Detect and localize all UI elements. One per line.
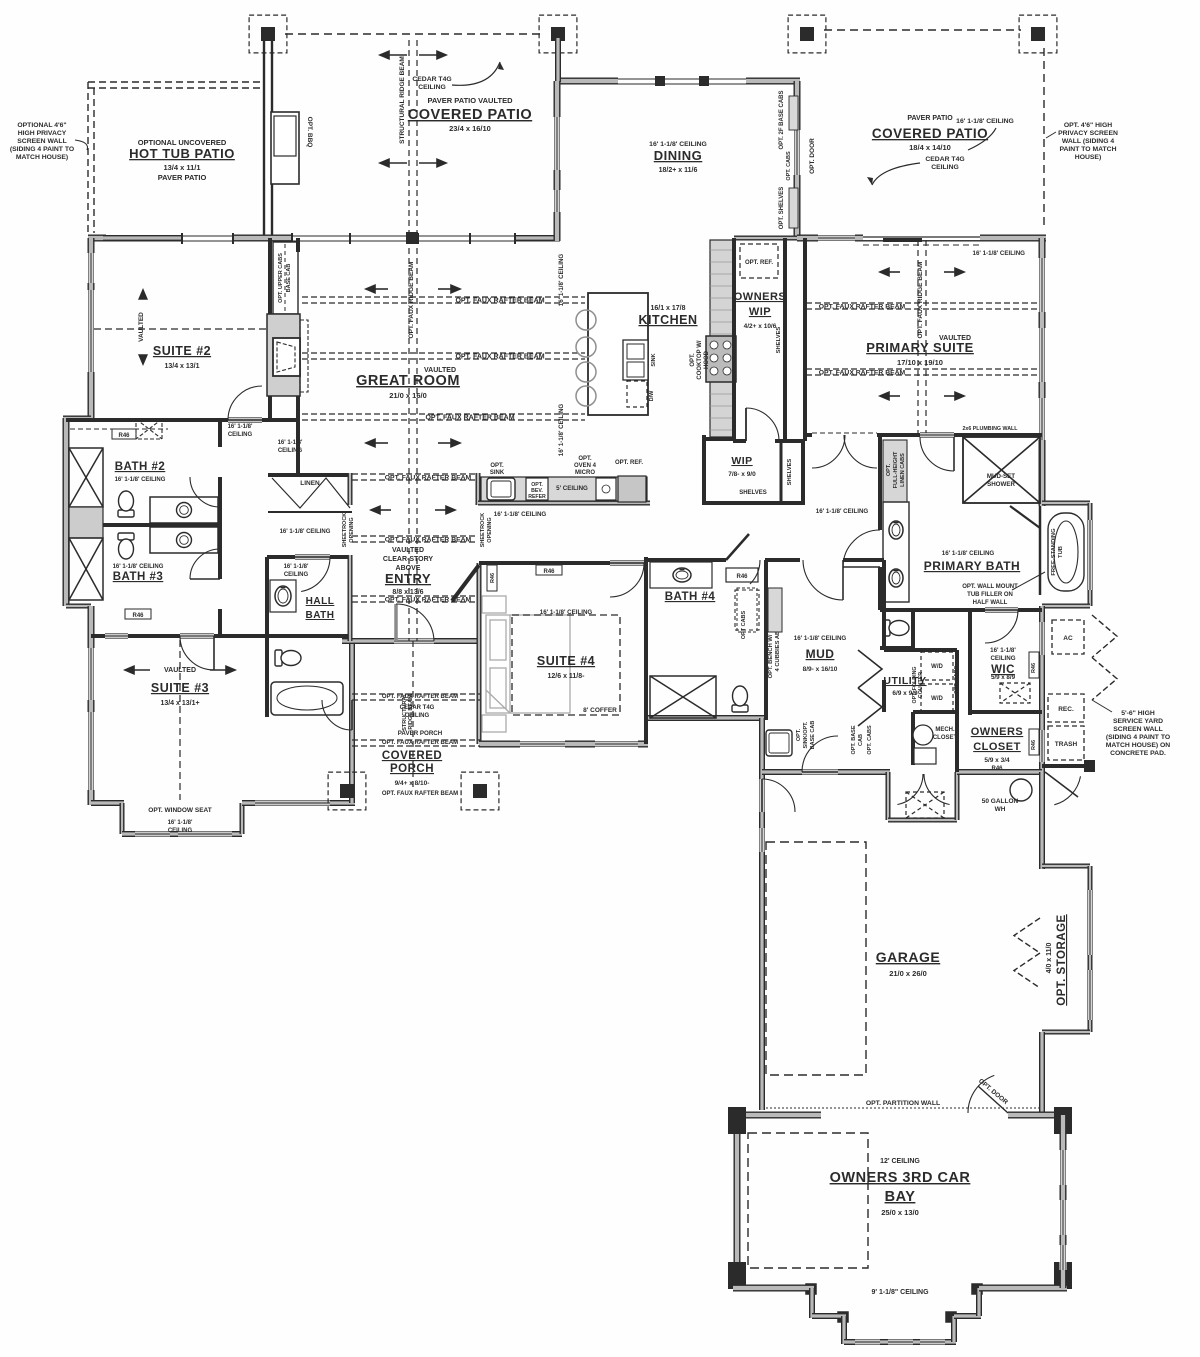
svg-text:SHELVES: SHELVES	[739, 490, 767, 496]
svg-text:R46: R46	[1031, 663, 1037, 673]
svg-text:OVEN 4: OVEN 4	[574, 463, 597, 469]
svg-text:BAY: BAY	[885, 1189, 916, 1205]
svg-text:8/8 x 13/6: 8/8 x 13/6	[392, 589, 423, 596]
svg-text:WIP: WIP	[749, 306, 771, 318]
svg-text:OPT. FAUX RAFTER BEAM: OPT. FAUX RAFTER BEAM	[425, 415, 514, 422]
svg-text:OPT. PARTITION WALL: OPT. PARTITION WALL	[866, 1100, 940, 1107]
svg-text:PAVER PATIO VAULTED: PAVER PATIO VAULTED	[427, 96, 513, 105]
svg-text:16' 1-1/8': 16' 1-1/8'	[284, 564, 309, 570]
svg-text:OPT.: OPT.	[690, 353, 696, 367]
svg-text:16' 1-1/8' CEILING: 16' 1-1/8' CEILING	[973, 250, 1026, 257]
svg-text:5' CEILING: 5' CEILING	[556, 485, 588, 492]
svg-text:BATH #2: BATH #2	[115, 461, 166, 473]
svg-text:BATH #3: BATH #3	[113, 571, 164, 583]
svg-text:16' 1-1/8' CEILING: 16' 1-1/8' CEILING	[956, 118, 1014, 125]
svg-text:PAVER PATIO: PAVER PATIO	[158, 173, 207, 182]
svg-text:16' 1-1/8' CEILING: 16' 1-1/8' CEILING	[942, 550, 995, 557]
svg-text:BASE CAB: BASE CAB	[286, 264, 292, 293]
svg-text:OPT.: OPT.	[578, 456, 592, 462]
svg-text:PAVER PORCH: PAVER PORCH	[398, 730, 443, 737]
svg-text:DINING: DINING	[654, 148, 703, 163]
svg-text:COVERED PATIO: COVERED PATIO	[408, 107, 532, 123]
svg-text:REFER: REFER	[528, 494, 546, 500]
svg-text:R46: R46	[736, 574, 748, 580]
svg-text:TUB: TUB	[1058, 546, 1064, 558]
svg-text:CEILING: CEILING	[405, 713, 430, 719]
svg-text:4/0 x 11/0: 4/0 x 11/0	[1046, 943, 1053, 974]
svg-text:HOOD: HOOD	[704, 350, 710, 369]
svg-text:CLOSET: CLOSET	[933, 735, 958, 741]
svg-text:OPT. WINDOW SEAT: OPT. WINDOW SEAT	[148, 807, 211, 814]
svg-text:OPENING: OPENING	[487, 517, 493, 542]
svg-text:REC.: REC.	[1058, 706, 1074, 713]
svg-text:SHELVES: SHELVES	[776, 327, 782, 354]
svg-text:OPT. 2F BASE CABS: OPT. 2F BASE CABS	[779, 90, 785, 149]
svg-text:16' 1-1/8' CEILING: 16' 1-1/8' CEILING	[794, 635, 847, 642]
svg-text:OPT. FAUX RAFTER BEAM: OPT. FAUX RAFTER BEAM	[455, 298, 544, 305]
svg-text:MECH.: MECH.	[935, 727, 955, 733]
svg-text:R46: R46	[1031, 740, 1037, 750]
svg-text:SCREEN WALL: SCREEN WALL	[1113, 726, 1162, 733]
svg-text:COVERED: COVERED	[382, 750, 442, 762]
svg-text:OPT. FAUX RIDGE BEAM: OPT. FAUX RIDGE BEAM	[408, 262, 415, 339]
svg-text:CEDAR T4G: CEDAR T4G	[412, 76, 451, 83]
svg-text:50 GALLON: 50 GALLON	[982, 798, 1019, 805]
svg-text:MUD: MUD	[806, 647, 835, 661]
svg-text:21/0 x 26/0: 21/0 x 26/0	[889, 969, 927, 978]
svg-text:HIGH PRIVACY: HIGH PRIVACY	[18, 130, 67, 137]
svg-text:OPT. FAUX RAFTER BEAM: OPT. FAUX RAFTER BEAM	[385, 475, 472, 482]
svg-text:16' 1-1/8' CEILING: 16' 1-1/8' CEILING	[558, 404, 565, 457]
svg-text:OPT. FAUX RAFTER BEAM: OPT. FAUX RAFTER BEAM	[455, 354, 544, 361]
svg-text:CLOSET: CLOSET	[973, 741, 1021, 753]
svg-text:OPT. FAUX RAFTER BEAM: OPT. FAUX RAFTER BEAM	[385, 537, 472, 544]
svg-text:CEILING: CEILING	[418, 84, 446, 91]
svg-text:STRUCTURAL RIDGE BEAM: STRUCTURAL RIDGE BEAM	[399, 56, 406, 144]
svg-text:25/0 x 13/0: 25/0 x 13/0	[881, 1208, 919, 1217]
svg-text:W/D: W/D	[931, 664, 943, 670]
svg-text:R46: R46	[543, 569, 555, 575]
svg-text:CEILING: CEILING	[990, 655, 1015, 662]
svg-text:5/9 x 3/4: 5/9 x 3/4	[984, 757, 1010, 764]
svg-text:CLEAR-STORY: CLEAR-STORY	[383, 556, 434, 563]
svg-text:BASE CAB: BASE CAB	[810, 721, 816, 750]
svg-text:FREE-STANDING: FREE-STANDING	[1051, 528, 1057, 576]
svg-text:R46: R46	[118, 433, 130, 439]
svg-text:8' COFFER: 8' COFFER	[583, 707, 617, 714]
svg-text:18/2+ x 11/6: 18/2+ x 11/6	[659, 167, 698, 174]
svg-text:HALL: HALL	[306, 596, 335, 607]
svg-text:OWNERS: OWNERS	[971, 726, 1024, 738]
svg-text:OWNERS: OWNERS	[734, 291, 787, 303]
svg-text:CEILING: CEILING	[931, 164, 959, 171]
svg-text:SUITE #4: SUITE #4	[537, 654, 595, 668]
svg-text:SHOWER: SHOWER	[987, 481, 1015, 488]
svg-text:SHEETROCK: SHEETROCK	[480, 513, 486, 548]
svg-text:PRIMARY SUITE: PRIMARY SUITE	[866, 340, 974, 355]
svg-text:MATCH HOUSE) ON: MATCH HOUSE) ON	[1106, 742, 1171, 749]
svg-text:23/4 x 16/10: 23/4 x 16/10	[449, 124, 491, 133]
svg-text:MICRO: MICRO	[575, 470, 595, 476]
svg-text:CAB: CAB	[858, 734, 864, 746]
svg-text:(SIDING 4 PAINT TO: (SIDING 4 PAINT TO	[1106, 734, 1170, 741]
svg-text:SHEETROCK: SHEETROCK	[342, 513, 348, 548]
svg-text:OPT. UPPER CABS: OPT. UPPER CABS	[278, 253, 284, 303]
svg-text:OPT.: OPT.	[886, 463, 892, 476]
svg-text:12' CEILING: 12' CEILING	[880, 1158, 920, 1165]
svg-text:SINK: SINK	[651, 353, 657, 366]
svg-text:OPTIONAL 4'6": OPTIONAL 4'6"	[17, 122, 66, 129]
svg-text:16' 1-1/8': 16' 1-1/8'	[228, 424, 253, 430]
svg-text:LINEN CABS: LINEN CABS	[900, 453, 906, 487]
svg-text:CEDAR T4G: CEDAR T4G	[925, 156, 964, 163]
svg-text:16' 1-1/8' CEILING: 16' 1-1/8' CEILING	[558, 254, 565, 307]
svg-text:CEILING: CEILING	[168, 828, 193, 834]
svg-text:CONCRETE PAD.: CONCRETE PAD.	[1110, 750, 1166, 757]
svg-text:RIDGE BEAM: RIDGE BEAM	[408, 694, 414, 730]
svg-text:WIP: WIP	[731, 455, 752, 467]
svg-text:CEILING: CEILING	[278, 448, 303, 454]
svg-text:PORCH: PORCH	[390, 763, 434, 775]
svg-text:OPT. WALL MOUNT: OPT. WALL MOUNT	[962, 584, 1018, 590]
svg-text:TRASH: TRASH	[1055, 741, 1078, 748]
svg-text:LINEN: LINEN	[300, 480, 320, 487]
svg-text:OWNERS 3RD CAR: OWNERS 3RD CAR	[830, 1170, 971, 1186]
svg-text:CEDAR T4G: CEDAR T4G	[400, 705, 435, 711]
svg-text:MUD-SET: MUD-SET	[987, 473, 1015, 480]
svg-text:PAVER PATIO: PAVER PATIO	[907, 115, 953, 122]
svg-text:OPT.: OPT.	[796, 728, 802, 741]
svg-text:OPT. 4'6" HIGH: OPT. 4'6" HIGH	[1064, 122, 1112, 129]
svg-text:5'-6" HIGH: 5'-6" HIGH	[1121, 710, 1155, 717]
svg-text:BATH #4: BATH #4	[665, 591, 716, 603]
svg-text:TUB FILLER ON: TUB FILLER ON	[967, 592, 1013, 598]
svg-text:AC: AC	[1063, 635, 1073, 642]
svg-text:(SIDING 4 PAINT TO: (SIDING 4 PAINT TO	[10, 146, 74, 153]
svg-text:SINK/OPT.: SINK/OPT.	[803, 721, 809, 748]
svg-text:16' 1-1/8': 16' 1-1/8'	[990, 647, 1016, 654]
svg-text:SUITE #2: SUITE #2	[153, 344, 211, 358]
svg-text:17/10 x 19/10: 17/10 x 19/10	[897, 358, 943, 367]
svg-text:OPT. CABS: OPT. CABS	[867, 725, 873, 755]
svg-text:HOUSE): HOUSE)	[1075, 154, 1101, 161]
svg-text:16' 1-1/8': 16' 1-1/8'	[278, 440, 303, 446]
svg-text:CEILING: CEILING	[284, 572, 309, 578]
svg-text:16' 1-1/8': 16' 1-1/8'	[168, 820, 193, 826]
svg-text:18/4 x 14/10: 18/4 x 14/10	[909, 143, 951, 152]
svg-text:4/2+ x 10/6: 4/2+ x 10/6	[744, 323, 777, 330]
svg-text:COOKTOP W/: COOKTOP W/	[697, 340, 703, 379]
svg-text:OPT. FAUX RAFTER BEAM: OPT. FAUX RAFTER BEAM	[819, 304, 906, 311]
svg-text:PAINT TO MATCH: PAINT TO MATCH	[1059, 146, 1116, 153]
svg-text:16' 1-1/8' CEILING: 16' 1-1/8' CEILING	[816, 508, 869, 515]
svg-text:VAULTED: VAULTED	[392, 547, 424, 554]
svg-text:OPT. BASE: OPT. BASE	[851, 725, 857, 754]
svg-text:CEILING: CEILING	[228, 432, 253, 438]
svg-text:R46: R46	[132, 613, 144, 619]
svg-text:HALF WALL: HALF WALL	[973, 600, 1008, 606]
svg-text:9' 1-1/8" CEILING: 9' 1-1/8" CEILING	[871, 1289, 929, 1296]
svg-text:13/4 x 13/1: 13/4 x 13/1	[164, 363, 199, 370]
svg-text:21/0 x 16/0: 21/0 x 16/0	[389, 391, 427, 400]
svg-text:16' 1-1/8' CEILING: 16' 1-1/8' CEILING	[115, 477, 166, 483]
svg-text:OPT. FAUX RAFTER BEAM: OPT. FAUX RAFTER BEAM	[382, 791, 458, 797]
svg-text:WH: WH	[995, 806, 1006, 813]
svg-text:OPT.: OPT.	[490, 463, 504, 469]
svg-text:7/8- x 9/0: 7/8- x 9/0	[728, 471, 756, 478]
svg-text:OPT CABS: OPT CABS	[741, 610, 747, 639]
svg-text:GARAGE: GARAGE	[876, 949, 940, 965]
svg-text:COVERED PATIO: COVERED PATIO	[872, 126, 988, 141]
svg-text:VAULTED: VAULTED	[138, 312, 145, 342]
svg-text:OPT. REF.: OPT. REF.	[615, 460, 643, 466]
svg-text:OPT. FAUX RAFTER BEAM: OPT. FAUX RAFTER BEAM	[385, 597, 472, 604]
svg-text:SERVICE YARD: SERVICE YARD	[1113, 718, 1163, 725]
svg-text:16' 1-1/8' CEILING: 16' 1-1/8' CEILING	[540, 609, 593, 616]
svg-text:ENTRY: ENTRY	[385, 571, 431, 586]
svg-text:SCREEN WALL: SCREEN WALL	[17, 138, 66, 145]
svg-text:12/6 x 11/8-: 12/6 x 11/8-	[548, 673, 586, 680]
svg-text:OPT. SHELVES: OPT. SHELVES	[779, 187, 785, 230]
svg-text:HOT TUB PATIO: HOT TUB PATIO	[129, 146, 235, 161]
svg-text:SINK: SINK	[490, 470, 505, 476]
svg-text:OPT. BBQ: OPT. BBQ	[306, 117, 313, 148]
svg-text:R46: R46	[991, 766, 1003, 772]
svg-text:FULL-HEIGHT: FULL-HEIGHT	[893, 451, 899, 488]
svg-text:OPENING: OPENING	[349, 517, 355, 542]
svg-text:MATCH HOUSE): MATCH HOUSE)	[16, 154, 68, 161]
svg-text:KITCHEN: KITCHEN	[638, 313, 697, 327]
svg-text:16' 1-1/8' CEILING: 16' 1-1/8' CEILING	[494, 511, 547, 518]
svg-text:PRIMARY BATH: PRIMARY BATH	[924, 559, 1020, 573]
svg-text:OPT. FAUX RAFTER BEAM: OPT. FAUX RAFTER BEAM	[382, 740, 458, 746]
svg-text:OPT. REF.: OPT. REF.	[745, 260, 773, 266]
svg-text:8/9- x 16/10: 8/9- x 16/10	[803, 666, 838, 673]
svg-text:16/1 x 17/8: 16/1 x 17/8	[650, 305, 685, 312]
svg-text:SHELVES: SHELVES	[787, 459, 793, 486]
svg-text:13/4 x 11/1: 13/4 x 11/1	[163, 163, 200, 172]
svg-text:BATH: BATH	[305, 610, 334, 621]
svg-text:2x6 PLUMBING WALL: 2x6 PLUMBING WALL	[962, 426, 1018, 432]
svg-text:OPT. FAUX RAFTER BEAM: OPT. FAUX RAFTER BEAM	[819, 370, 906, 377]
svg-text:OPT. CABS: OPT. CABS	[954, 665, 960, 694]
svg-text:16' 1-1/8' CEILING: 16' 1-1/8' CEILING	[649, 141, 707, 148]
svg-text:9/4+ x 8/10-: 9/4+ x 8/10-	[395, 780, 430, 787]
svg-text:OPT. FAUX RAFTER BEAM: OPT. FAUX RAFTER BEAM	[382, 694, 458, 700]
svg-text:WALL (SIDING 4: WALL (SIDING 4	[1062, 138, 1115, 145]
svg-text:COUNTER: COUNTER	[918, 672, 924, 698]
svg-text:16' 1-1/8' CEILING: 16' 1-1/8' CEILING	[280, 529, 331, 535]
svg-text:5/9 x 8/9: 5/9 x 8/9	[991, 674, 1016, 681]
svg-text:OPT. CABS: OPT. CABS	[786, 151, 792, 181]
svg-text:16' 1-1/8' CEILING: 16' 1-1/8' CEILING	[113, 564, 164, 570]
svg-text:PRIVACY SCREEN: PRIVACY SCREEN	[1058, 130, 1118, 137]
svg-text:W/D: W/D	[931, 696, 943, 702]
svg-text:D/W: D/W	[649, 390, 655, 402]
svg-text:OPT. FAUX RIDGE BEAM: OPT. FAUX RIDGE BEAM	[917, 262, 924, 339]
svg-text:GREAT ROOM: GREAT ROOM	[356, 373, 460, 389]
svg-text:OPT. DOOR: OPT. DOOR	[809, 138, 816, 174]
svg-text:R46: R46	[490, 573, 496, 583]
svg-text:OPT. STORAGE: OPT. STORAGE	[1056, 914, 1068, 1005]
